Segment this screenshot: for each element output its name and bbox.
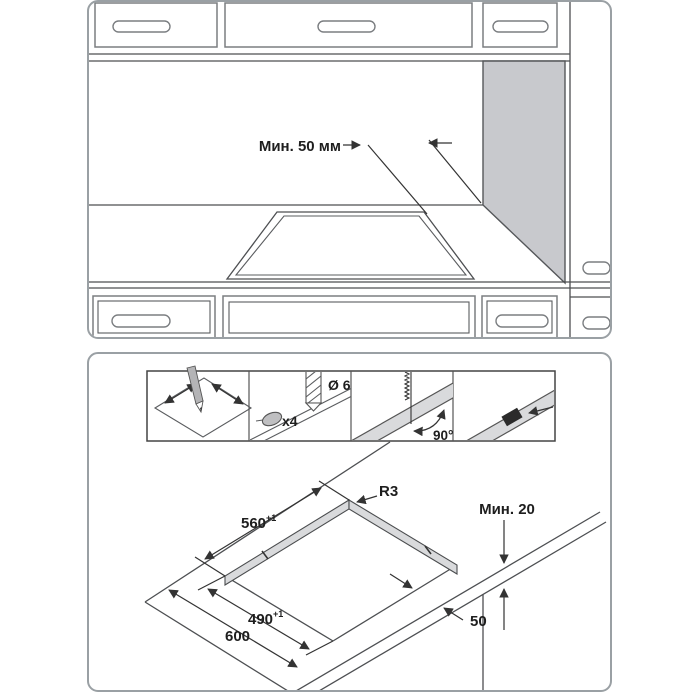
drawer-handle-icon bbox=[112, 315, 170, 327]
drawer-handle-icon bbox=[496, 315, 548, 327]
drill-diameter-label: Ø 6 bbox=[328, 377, 351, 393]
drawer-handle-icon bbox=[493, 21, 548, 32]
drawer-handle-icon bbox=[583, 317, 610, 329]
installation-diagram: Мин. 50 мм 560+1 490+1 600 50 bbox=[0, 0, 700, 700]
min-edge-label: Мин. 20 bbox=[479, 501, 535, 518]
screw-count-label: x4 bbox=[282, 413, 298, 429]
drawer-handle-icon bbox=[583, 262, 610, 274]
drill-bit-icon bbox=[306, 371, 321, 411]
dim-50-label: 50 bbox=[470, 613, 487, 630]
dim-r3-label: R3 bbox=[379, 483, 398, 500]
manual-page: Мин. 50 мм 560+1 490+1 600 50 bbox=[0, 0, 700, 700]
drawer-handle-icon bbox=[318, 21, 375, 32]
drawer-handle-icon bbox=[113, 21, 170, 32]
min-clearance-label: Мин. 50 мм bbox=[259, 138, 341, 155]
dim-600-label: 600 bbox=[225, 628, 250, 645]
cut-angle-label: 90° bbox=[433, 428, 453, 443]
